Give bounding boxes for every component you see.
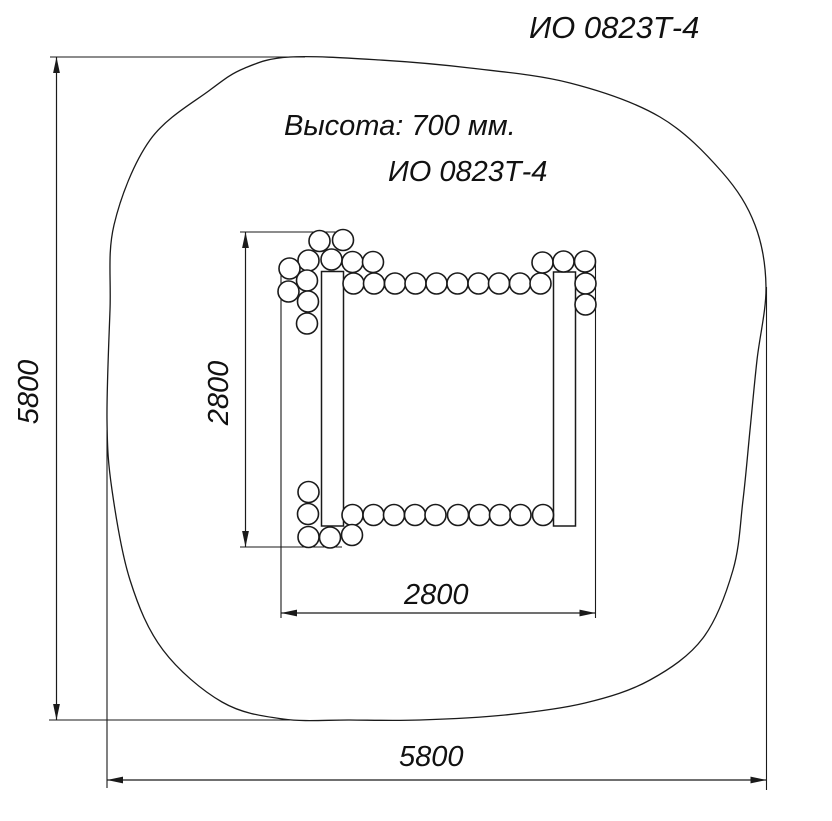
log-post-circle — [447, 273, 468, 294]
dimension-value-overall-width: 5800 — [399, 743, 464, 772]
log-post-circle — [364, 273, 385, 294]
log-post-circle — [298, 527, 319, 548]
height-note: Высота: 700 мм. — [284, 112, 516, 141]
log-post-circle — [342, 252, 363, 273]
log-post-circle — [298, 291, 319, 312]
wall-bar — [554, 272, 576, 526]
log-post-circle — [342, 505, 363, 526]
dimension-arrow — [580, 610, 596, 617]
technical-drawing-page: ИО 0823Т-4 Высота: 700 мм. ИО 0823Т-4 58… — [0, 0, 832, 821]
log-post-circle — [363, 252, 384, 273]
log-post-circle — [321, 249, 342, 270]
log-post-circle — [298, 504, 319, 525]
log-post-circle — [297, 270, 318, 291]
log-post-circle — [320, 527, 341, 548]
dimension-arrow — [281, 610, 297, 617]
dimension-value-overall-height: 5800 — [15, 352, 45, 432]
log-post-circle — [384, 505, 405, 526]
dimension-value-inner-width: 2800 — [404, 581, 469, 610]
log-post-circle — [405, 505, 426, 526]
log-post-circle — [385, 273, 406, 294]
dimension-arrow — [53, 704, 60, 720]
log-post-circle — [309, 231, 330, 252]
dimension-arrow — [751, 777, 767, 784]
model-label: ИО 0823Т-4 — [388, 158, 547, 187]
log-post-circle — [575, 251, 596, 272]
wall-bar — [322, 272, 344, 527]
log-post-circle — [489, 273, 510, 294]
log-post-circle — [448, 505, 469, 526]
dimension-arrow — [107, 777, 123, 784]
log-post-circle — [468, 273, 489, 294]
log-post-circle — [533, 505, 554, 526]
log-post-circle — [298, 250, 319, 271]
log-post-circle — [575, 294, 596, 315]
log-post-circle — [343, 273, 364, 294]
log-post-circle — [298, 482, 319, 503]
log-post-circle — [532, 252, 553, 273]
log-post-circle — [333, 230, 354, 251]
log-post-circle — [490, 505, 511, 526]
log-post-circle — [363, 505, 384, 526]
log-post-circle — [553, 251, 574, 272]
log-post-circle — [405, 273, 426, 294]
log-post-circle — [469, 505, 490, 526]
log-post-circle — [342, 525, 363, 546]
log-post-circle — [575, 273, 596, 294]
log-post-circle — [426, 273, 447, 294]
log-post-circle — [278, 281, 299, 302]
log-post-circle — [510, 273, 531, 294]
log-post-circle — [297, 313, 318, 334]
log-post-circle — [425, 505, 446, 526]
drawing-title: ИО 0823Т-4 — [529, 12, 699, 43]
log-post-circle — [510, 505, 531, 526]
dimension-arrow — [242, 232, 249, 248]
dimension-value-inner-height: 2800 — [205, 353, 235, 433]
dimension-arrow — [242, 531, 249, 547]
dimension-arrow — [53, 57, 60, 73]
log-post-circle — [530, 273, 551, 294]
